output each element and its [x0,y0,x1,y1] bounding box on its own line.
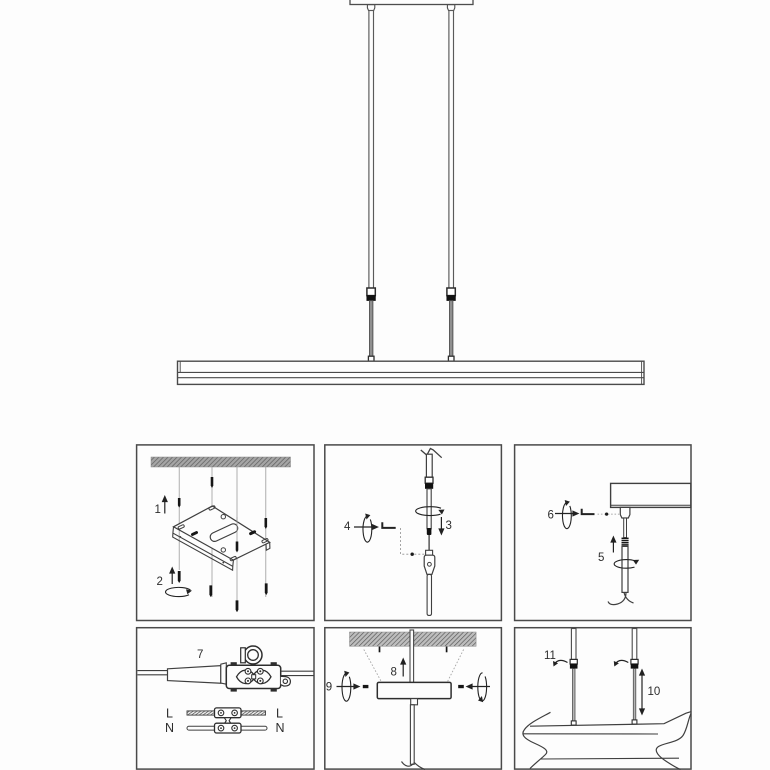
svg-text:9: 9 [326,682,332,694]
svg-text:10: 10 [648,686,661,698]
svg-text:6: 6 [548,510,554,522]
svg-text:5: 5 [598,552,604,564]
svg-text:N: N [276,721,285,735]
svg-text:8: 8 [391,667,397,679]
svg-text:3: 3 [446,520,452,532]
svg-text:L: L [166,707,173,721]
svg-text:11: 11 [544,650,556,662]
svg-text:N: N [165,721,174,735]
svg-text:2: 2 [157,576,163,588]
svg-text:7: 7 [197,649,203,661]
svg-text:1: 1 [155,504,161,516]
svg-text:L: L [276,707,283,721]
svg-text:4: 4 [344,521,351,533]
